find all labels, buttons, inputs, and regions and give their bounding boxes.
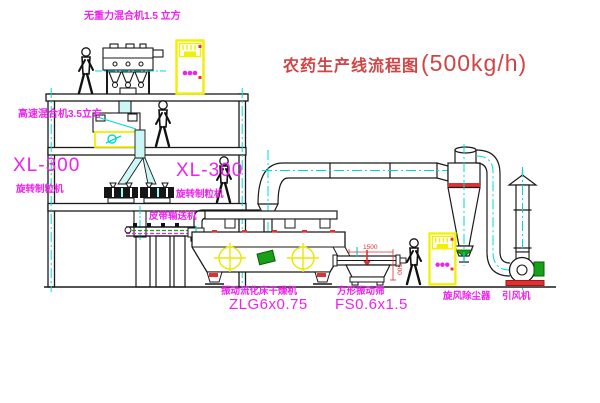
- dimension-500: 500: [395, 264, 402, 275]
- gravity-mixer-drawing: [95, 44, 166, 94]
- floor-slab-mid: [48, 148, 246, 156]
- person-figure-ground: [407, 239, 421, 284]
- label-high-speed-mixer: 高速混合机3.5立方: [18, 110, 102, 120]
- title-chinese: 农药生产线流程图: [283, 52, 419, 76]
- fan-drawing: [506, 252, 544, 286]
- label-fan: 引风机: [502, 292, 531, 302]
- label-granulator-left: 旋转制粒机: [16, 185, 64, 195]
- control-cabinet-top: [177, 41, 204, 94]
- control-cabinet-bottom: [429, 233, 455, 284]
- label-dryer-model: ZLG6x0.75: [229, 297, 308, 312]
- label-sieve-model: FS0.6x1.5: [335, 297, 408, 312]
- label-xl300-left: XL-300: [13, 156, 80, 175]
- label-granulator-right: 旋转制粒机: [176, 190, 224, 200]
- fan-motor: [534, 262, 544, 276]
- label-gravity-mixer: 无重力混合机1.5 立方: [84, 12, 181, 22]
- label-belt-conveyor: 皮带输送机: [149, 212, 197, 222]
- granulator-right-drawing: [140, 183, 174, 203]
- title-capacity: (500kg/h): [421, 50, 527, 77]
- label-cyclone: 旋风除尘器: [443, 292, 491, 302]
- label-xl300-right: XL-300: [176, 161, 243, 180]
- person-figure-mixer-floor: [156, 101, 170, 146]
- pesticide-line-flowchart: 农药生产线流程图 (500kg/h) 无重力混合机1.5 立方 高速混合机3.5…: [0, 0, 600, 403]
- fan-base: [506, 281, 544, 286]
- diagram-title: 农药生产线流程图 (500kg/h): [283, 50, 527, 77]
- floor-slab-top: [46, 94, 248, 101]
- granulator-left-drawing: [104, 183, 138, 203]
- cyclone-outlet-pipe: [476, 150, 510, 276]
- high-speed-mixer-drawing: [93, 101, 140, 147]
- person-figure-top-floor: [79, 48, 93, 93]
- dimension-1500: 1500: [363, 245, 377, 252]
